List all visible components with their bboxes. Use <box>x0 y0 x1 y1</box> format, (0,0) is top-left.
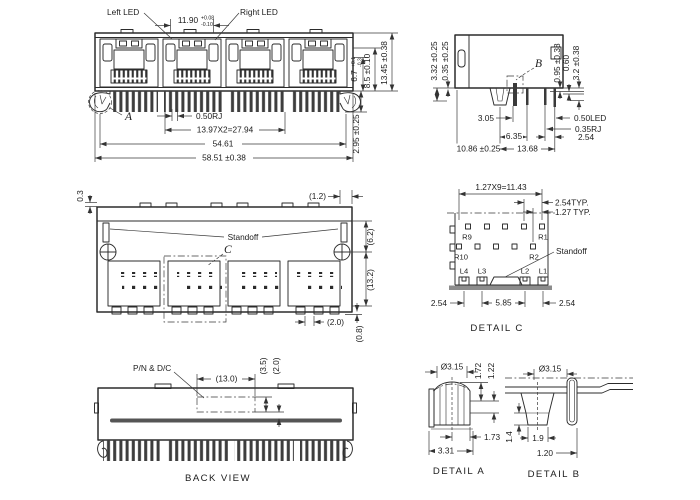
side-pin <box>513 83 517 106</box>
pad-row-bottom <box>457 244 536 249</box>
detail-c-dimensions: 1.27X9=11.43 2.54TYP. 1.27 TYP. R9 R1 R1… <box>431 182 591 334</box>
svg-text:+0.1: +0.1 <box>351 57 357 67</box>
svg-text:6.7: 6.7 <box>349 70 359 82</box>
pn-dc-label: P/N & D/C <box>133 363 171 373</box>
side-pin <box>526 88 529 105</box>
bottom-tabs <box>112 307 339 314</box>
dim-mid-height: 8.5 ±0.10 <box>362 53 372 88</box>
engineering-drawing-canvas: Left LED Right LED 11.90 +0.08 -0.10 A 0… <box>0 0 700 500</box>
pad-label-l2: L2 <box>521 267 529 276</box>
dim-overall-width: 58.51 ±0.38 <box>202 153 246 163</box>
dim-62: (6.2) <box>365 228 375 245</box>
dim-body-width: 54.61 <box>213 139 234 149</box>
rj45-port-2 <box>163 39 221 87</box>
dim-14: 1.4 <box>504 431 514 443</box>
dim-12: (1.2) <box>309 191 326 201</box>
dim-rj-offset: 0.50RJ <box>196 111 222 121</box>
dim-035: 0.35 ±0.25 <box>440 41 450 81</box>
detail-a-caption: DETAIL A <box>433 466 485 477</box>
dim-635: 6.35 <box>506 131 523 141</box>
mount-hole-left <box>100 244 116 260</box>
dim-led-pitch-tol-lower: -0.10 <box>201 22 213 28</box>
dim-060: 0.60 <box>561 55 571 72</box>
dim-254-left: 2.54 <box>431 298 448 308</box>
contact-comb <box>111 70 147 83</box>
dim-305: 3.05 <box>478 113 495 123</box>
dim-132: (13.2) <box>365 269 375 291</box>
rj45-connector-drawing: Left LED Right LED 11.90 +0.08 -0.10 A 0… <box>0 0 700 500</box>
dim-08: (0.8) <box>354 325 364 342</box>
standoff-post-left <box>103 223 109 242</box>
dim-585: 5.85 <box>495 298 512 308</box>
pcb-edge <box>449 286 552 291</box>
pad-label-l4: L4 <box>460 267 468 276</box>
dim-127typ: 1.27 TYP. <box>555 207 591 217</box>
port-cavity <box>168 261 220 306</box>
pad-label-l1: L1 <box>539 267 547 276</box>
dim-254-right: 2.54 <box>559 298 576 308</box>
detail-a: Ø3.15 1.72 1.22 1.73 3.31 DETAIL A <box>425 362 501 478</box>
dim-19: 1.9 <box>532 433 544 443</box>
dim-led-pitch-tol-upper: +0.08 <box>201 16 214 22</box>
dim-dia-315b: Ø3.15 <box>539 364 562 374</box>
dim-pad-pitch: 1.27X9=11.43 <box>475 182 527 192</box>
dim-03: 0.3 <box>75 190 85 202</box>
standoff-label: Standoff <box>228 232 259 242</box>
dim-122: 1.22 <box>486 363 496 380</box>
led-window <box>209 44 218 61</box>
detail-c-marker: C <box>224 244 232 256</box>
rj45-port-1 <box>100 39 158 87</box>
standoff-profile <box>490 277 522 285</box>
dim-050led: 0.50LED <box>574 113 606 123</box>
rj45-port-4 <box>289 39 347 87</box>
detail-b: Ø3.15 1.4 1.9 1.20 DETAIL B <box>504 364 633 481</box>
dim-20-back: (2.0) <box>271 357 281 374</box>
side-slot <box>458 50 465 67</box>
dim-1368: 13.68 <box>517 144 538 154</box>
dim-120: 1.20 <box>537 448 554 458</box>
standoff-post-right <box>341 223 347 242</box>
detail-a-body <box>429 377 473 432</box>
dim-173: 1.73 <box>484 432 501 442</box>
led-window <box>166 44 175 61</box>
bottom-view: Standoff C 0.3 (1.2) (6.2) (13.2) (2.0) … <box>75 190 375 343</box>
dim-331: 3.31 <box>438 446 455 456</box>
side-view-body <box>455 35 563 107</box>
front-pin-row <box>112 91 340 112</box>
back-pin-row <box>103 440 162 461</box>
dim-port-pitch: 13.97X2=27.94 <box>197 125 254 135</box>
l-pads <box>459 277 548 285</box>
detail-a-callout-circle <box>89 91 112 114</box>
seam-bar <box>110 419 342 423</box>
front-view: Left LED Right LED 11.90 +0.08 -0.10 A 0… <box>89 7 399 163</box>
dim-overall-height: 13.45 ±0.38 <box>379 41 389 85</box>
dim-172: 1.72 <box>473 363 483 380</box>
port-cavity <box>228 261 280 306</box>
port-cavity <box>108 261 160 306</box>
pad-label-r9: R9 <box>462 233 472 242</box>
detail-c-caption: DETAIL C <box>470 323 523 334</box>
led-window <box>146 44 155 61</box>
led-window <box>272 44 281 61</box>
bottom-view-dimensions: Standoff C 0.3 (1.2) (6.2) (13.2) (2.0) … <box>75 190 375 343</box>
pad-label-r1: R1 <box>538 233 548 242</box>
dim-20: (2.0) <box>327 317 344 327</box>
led-window <box>103 44 112 61</box>
contact-comb <box>237 70 273 83</box>
detail-b-caption: DETAIL B <box>528 469 581 480</box>
led-window <box>229 44 238 61</box>
left-led-label: Left LED <box>107 7 139 17</box>
detail-b-marker: B <box>535 58 542 70</box>
standoff-label: Standoff <box>556 246 587 256</box>
mounting-ear-right <box>340 91 360 112</box>
contact-comb <box>174 70 210 83</box>
pad-label-l3: L3 <box>478 267 486 276</box>
dim-130: (13.0) <box>216 374 238 384</box>
detail-b-body <box>505 378 633 430</box>
pad-label-r10: R10 <box>454 253 468 262</box>
pn-marking-area <box>197 397 255 412</box>
detail-b-dimensions: Ø3.15 1.4 1.9 1.20 DETAIL B <box>504 364 580 481</box>
side-view: B 3.32 ±0.25 0.35 ±0.25 0.95 ±0.38 0.60 … <box>429 35 606 154</box>
dim-1086: 10.86 ±0.25 <box>457 144 501 154</box>
dim-dia-315: Ø3.15 <box>441 362 464 372</box>
detail-a-dimensions: Ø3.15 1.72 1.22 1.73 3.31 DETAIL A <box>425 362 501 478</box>
right-led-label: Right LED <box>240 7 278 17</box>
dim-254: 2.54 <box>578 132 595 142</box>
detail-c-body <box>447 213 557 290</box>
board-lock-pin <box>567 378 577 425</box>
dim-332: 3.32 ±0.25 <box>429 41 439 81</box>
mounting-ear-left <box>89 91 112 114</box>
side-pin <box>554 88 557 107</box>
side-pin <box>544 88 547 105</box>
back-view: P/N & D/C (13.0) (3.5) (2.0) BACK VIEW <box>95 357 357 484</box>
rj45-port-3 <box>226 39 284 87</box>
detail-a-marker: A <box>124 111 133 123</box>
dim-35: (3.5) <box>258 357 268 374</box>
detail-c: 1.27X9=11.43 2.54TYP. 1.27 TYP. R9 R1 R1… <box>431 182 591 334</box>
dim-32: 3.2 ±0.38 <box>571 45 581 80</box>
bottom-view-body <box>97 203 352 322</box>
port-cavity <box>288 261 340 306</box>
led-window <box>335 44 344 61</box>
dim-pin-length: 2.95 ±0.25 <box>351 114 361 154</box>
back-view-caption: BACK VIEW <box>185 473 251 484</box>
mount-hole-right <box>334 244 350 260</box>
contact-comb <box>300 70 336 83</box>
dim-254typ: 2.54TYP. <box>555 198 589 208</box>
dim-led-pitch: 11.90 <box>178 15 199 25</box>
led-window <box>292 44 301 61</box>
back-view-body <box>95 384 357 461</box>
